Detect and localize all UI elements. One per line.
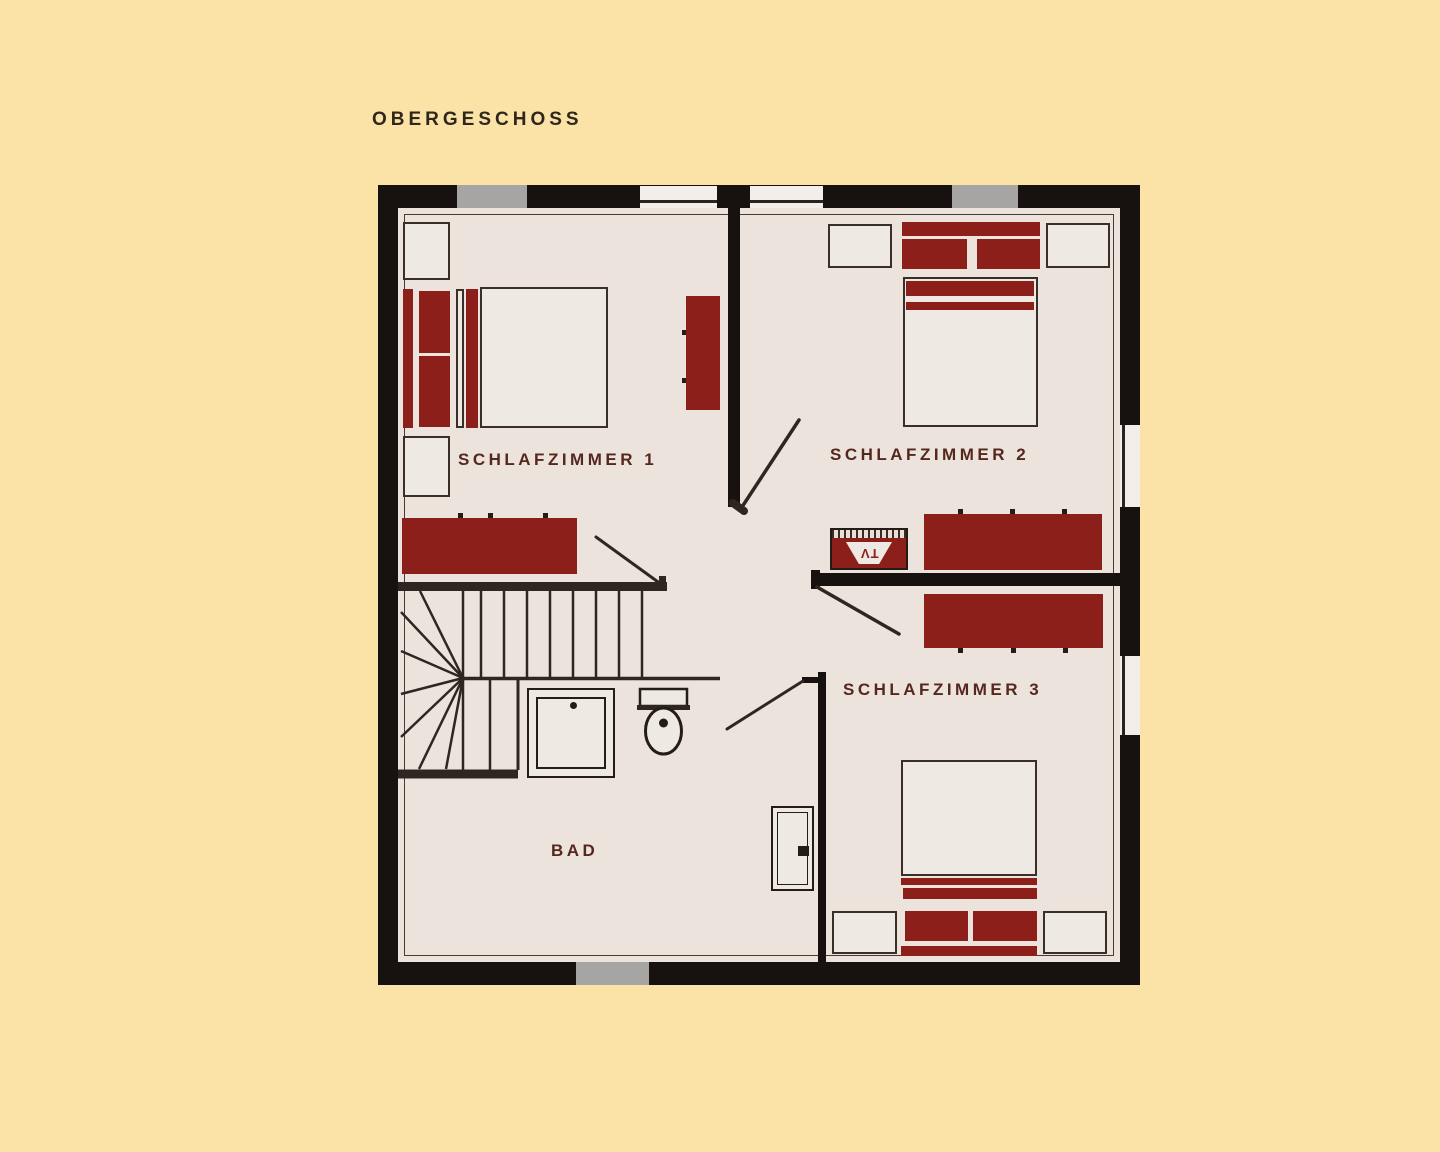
bed-pillow <box>977 239 1040 269</box>
bed-fold-strip <box>456 289 464 428</box>
nightstand <box>828 224 892 268</box>
window-right-white-1 <box>1120 425 1140 507</box>
sideboard <box>924 514 1102 570</box>
tv-vent-hatch <box>832 530 906 538</box>
room-label-schlafzimmer-1: SCHLAFZIMMER 1 <box>458 450 657 470</box>
nightstand <box>1046 223 1110 268</box>
bed-blanket-strip <box>906 281 1034 296</box>
floor-plan-page: OBERGESCHOSS <box>0 0 1440 1152</box>
sideboard-knob <box>1063 648 1068 653</box>
shower-drain <box>570 702 577 709</box>
dresser-knob <box>682 330 686 335</box>
wall-bedroom2-bedroom3 <box>815 573 1120 586</box>
wardrobe-knob <box>458 513 463 518</box>
washbasin-tap <box>798 846 809 856</box>
wardrobe-knob <box>488 513 493 518</box>
sideboard-knob <box>1011 648 1016 653</box>
window-glass-line <box>640 200 717 203</box>
room-label-bad: BAD <box>551 841 598 861</box>
double-bed <box>903 277 1038 427</box>
bed-fold-strip <box>906 302 1034 310</box>
bed-headboard <box>902 222 1040 236</box>
bed-pillow <box>419 291 450 353</box>
wall-right <box>1120 185 1140 985</box>
wall-bedroom1-bedroom2 <box>728 208 740 507</box>
window-glass-line <box>1122 656 1125 735</box>
window-glass-line <box>750 200 823 203</box>
window-right-white-2 <box>1120 656 1140 735</box>
sideboard-knob <box>958 648 963 653</box>
bed-blanket-strip <box>466 289 478 428</box>
wardrobe-knob <box>543 513 548 518</box>
bed-pillow <box>419 356 450 427</box>
window-top-gray-1 <box>457 185 527 208</box>
wardrobe <box>402 518 577 574</box>
wall-left <box>378 185 398 985</box>
window-top-white-2 <box>750 186 823 208</box>
tv-symbol: TV <box>846 542 892 564</box>
wall-bedroom2-bedroom3-endcap <box>811 570 820 589</box>
bed-blanket-strip <box>903 888 1037 899</box>
bed-headboard <box>901 946 1037 956</box>
room-label-schlafzimmer-2: SCHLAFZIMMER 2 <box>830 445 1029 465</box>
tv-label: TV <box>860 546 879 561</box>
bed-fold-strip <box>901 878 1037 885</box>
bed-pillow <box>973 911 1037 941</box>
sideboard <box>924 594 1103 648</box>
page-title: OBERGESCHOSS <box>372 109 583 131</box>
tv-screen: TV <box>832 538 906 568</box>
sideboard-knob <box>958 509 963 514</box>
sideboard-knob <box>1010 509 1015 514</box>
double-bed <box>480 287 608 428</box>
wall-bath-bedroom3 <box>818 672 826 962</box>
bed-pillow <box>905 911 968 941</box>
window-top-white-1 <box>640 186 717 208</box>
tv-board: TV <box>830 528 908 570</box>
window-bottom-gray <box>576 962 649 985</box>
dresser-knob <box>682 378 686 383</box>
nightstand <box>403 436 450 497</box>
wall-bottom <box>378 962 1140 985</box>
double-bed <box>901 760 1037 876</box>
sideboard-knob <box>1062 509 1067 514</box>
window-glass-line <box>1122 425 1125 507</box>
nightstand <box>1043 911 1107 954</box>
nightstand <box>832 911 897 954</box>
bed-pillow <box>902 239 967 269</box>
room-label-schlafzimmer-3: SCHLAFZIMMER 3 <box>843 680 1042 700</box>
nightstand <box>403 222 450 280</box>
wall-bath-door-tick <box>802 677 818 683</box>
window-top-gray-2 <box>952 185 1018 208</box>
dresser <box>686 296 720 410</box>
bed-headboard <box>403 289 413 428</box>
